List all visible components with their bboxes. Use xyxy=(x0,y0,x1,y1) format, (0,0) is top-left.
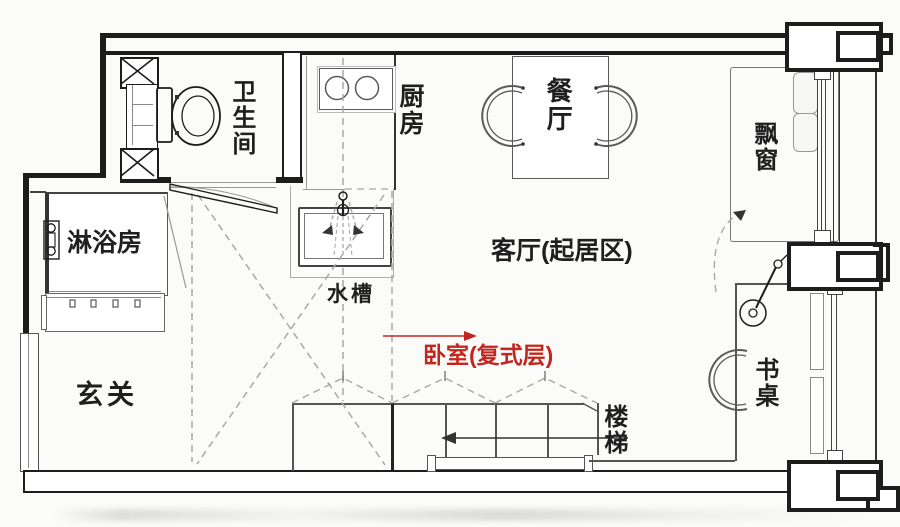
floor-plan: 卫生间 厨房 餐厅 飘窗 淋浴房 水槽 客厅(起居区) 卧室(复式层) 玄关 书… xyxy=(0,0,900,527)
room-label-living: 客厅(起居区) xyxy=(491,237,633,265)
room-label-bathroom: 卫生间 xyxy=(227,79,254,157)
dining-chair-right xyxy=(594,86,637,146)
bay-access-dashed-arc xyxy=(714,210,746,292)
desk-lamp xyxy=(740,255,787,326)
sink-faucet xyxy=(322,192,364,258)
room-label-bedroom-loft: 卧室(复式层) xyxy=(423,343,553,369)
room-label-dining: 餐厅 xyxy=(543,77,572,133)
stairs-chevrons xyxy=(292,371,597,411)
bedroom-loft-arrow xyxy=(383,331,477,341)
bench-hooks xyxy=(70,300,140,307)
room-label-stairs: 楼梯 xyxy=(599,404,626,456)
shower-door-leaf xyxy=(164,196,186,288)
desk-chair xyxy=(709,350,747,410)
room-label-entry: 玄关 xyxy=(76,380,138,410)
bathroom-door xyxy=(170,184,277,213)
label-sink: 水槽 xyxy=(327,283,375,307)
toilet xyxy=(157,87,220,145)
duct-shaft-x-marks xyxy=(121,58,154,176)
room-label-shower: 淋浴房 xyxy=(67,229,142,257)
dining-chair-left xyxy=(482,86,525,146)
stove-burners xyxy=(326,77,379,100)
shower-fixture xyxy=(44,221,59,259)
room-label-kitchen: 厨房 xyxy=(396,83,424,137)
room-label-desk: 书桌 xyxy=(750,357,777,409)
room-label-bay-window: 飘窗 xyxy=(749,121,776,173)
furniture-linework xyxy=(0,0,900,527)
